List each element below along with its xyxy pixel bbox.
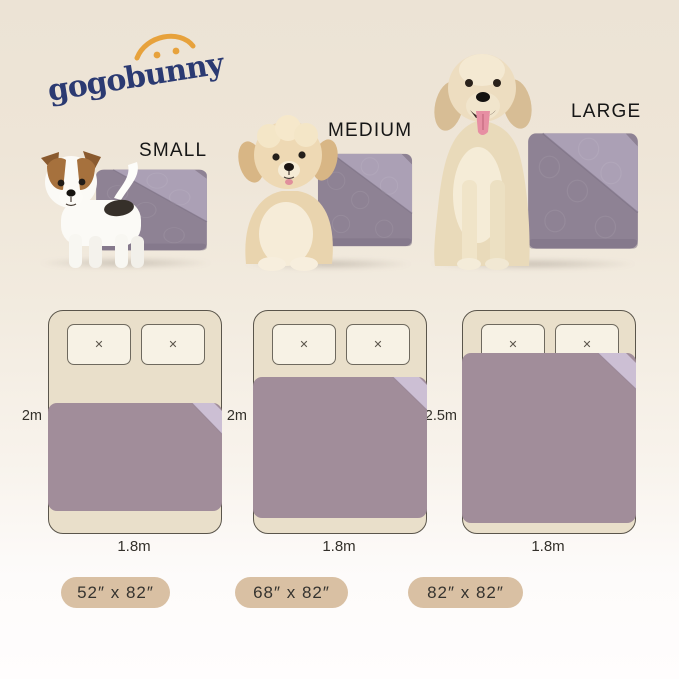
pillow: ✕ [272,324,336,365]
large-blanket-coverage [462,353,636,523]
small-bed-diagram: ✕ ✕ [48,310,222,534]
brand-logo: gogobunny [46,30,236,122]
large-bed-diagram: ✕ ✕ [462,310,636,534]
bed-width-label: 1.8m [253,538,425,555]
dimensions-badge-medium: 68″ x 82″ [235,577,348,608]
bed-width-label: 1.8m [48,538,220,555]
pillow: ✕ [141,324,205,365]
dimensions-badge-small: 52″ x 82″ [61,577,170,608]
pillow-cross-icon: ✕ [508,338,517,351]
bed-length-label: 2m [8,408,42,424]
golden-retriever-image [424,30,536,272]
small-blanket-coverage [48,403,222,511]
pillow: ✕ [346,324,410,365]
bed-width-label: 1.8m [462,538,634,555]
jack-russell-puppy-image [33,150,150,272]
product-size-chart: gogobunny SMALL [0,0,679,679]
size-label-small: SMALL [139,140,207,162]
large-blanket-image [527,131,639,251]
size-label-large: LARGE [571,101,641,123]
pillow-cross-icon: ✕ [299,338,308,351]
medium-bed-diagram: ✕ ✕ [253,310,427,534]
dimensions-badge-large: 82″ x 82″ [408,577,523,608]
pillow: ✕ [67,324,131,365]
pillow-cross-icon: ✕ [168,338,177,351]
medium-blanket-coverage [253,377,427,518]
pillow-cross-icon: ✕ [373,338,382,351]
pillow-cross-icon: ✕ [582,338,591,351]
size-label-medium: MEDIUM [328,120,412,142]
pillow-cross-icon: ✕ [94,338,103,351]
fluffy-puppy-image [236,112,340,272]
